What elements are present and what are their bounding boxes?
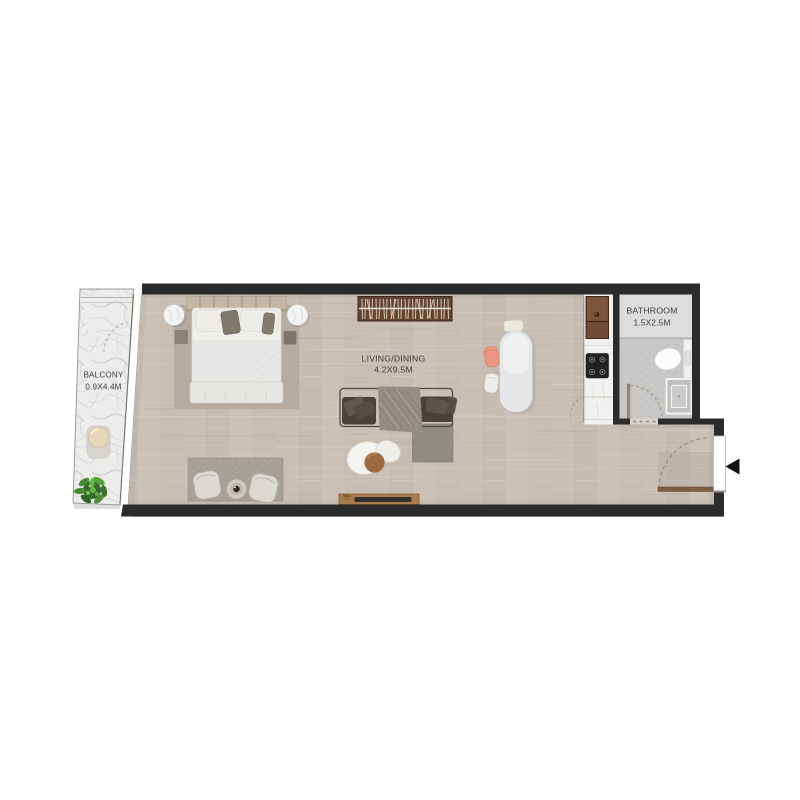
svg-text:BALCONY: BALCONY (83, 371, 123, 380)
svg-text:4.2X9.5M: 4.2X9.5M (374, 365, 413, 375)
svg-text:BATHROOM: BATHROOM (626, 306, 677, 316)
svg-text:1.5X2.5M: 1.5X2.5M (633, 318, 670, 328)
svg-text:0.9X4.4M: 0.9X4.4M (85, 383, 121, 392)
svg-text:LIVING/DINING: LIVING/DINING (362, 354, 426, 364)
